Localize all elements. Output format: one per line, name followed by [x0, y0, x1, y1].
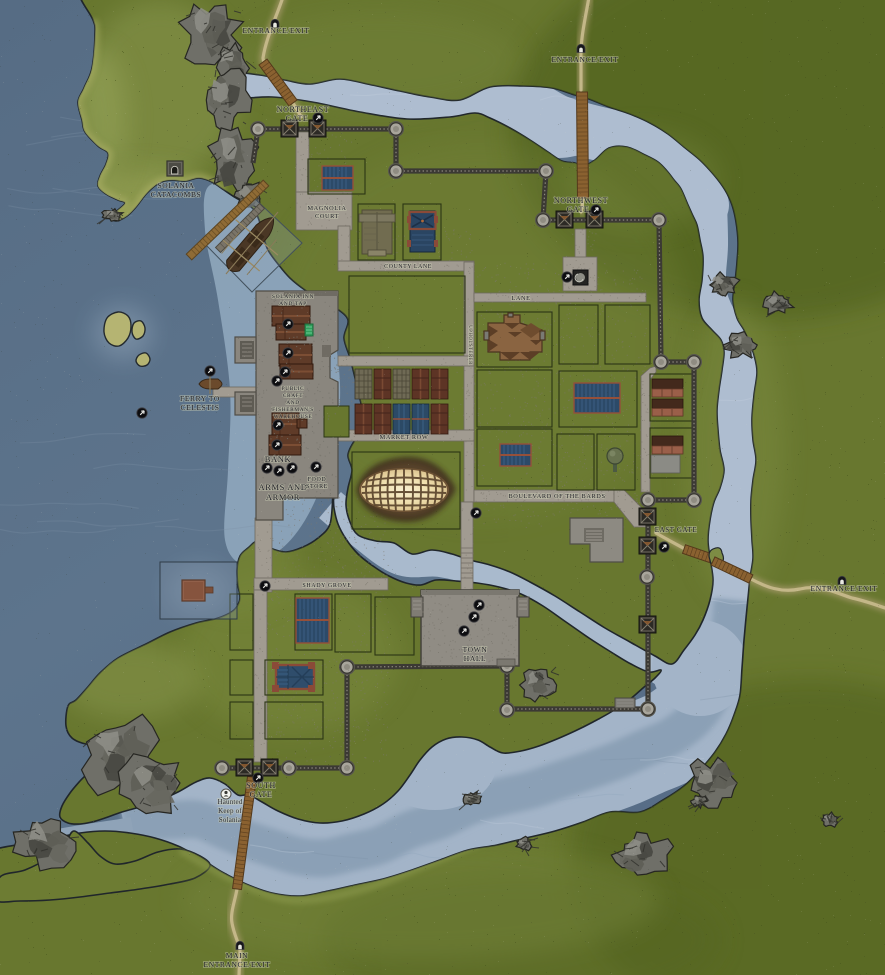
- svg-text:BANK: BANK: [265, 454, 292, 464]
- svg-text:NORTHEAST: NORTHEAST: [277, 105, 329, 114]
- svg-text:GATE: GATE: [250, 790, 273, 799]
- svg-text:NORTHWEST: NORTHWEST: [554, 196, 608, 205]
- svg-text:Solania: Solania: [219, 816, 242, 824]
- svg-text:WAREHOUSE: WAREHOUSE: [274, 414, 313, 420]
- svg-text:SOUTH: SOUTH: [246, 781, 276, 790]
- svg-text:ARMOR: ARMOR: [266, 492, 300, 502]
- svg-text:AND TAP: AND TAP: [279, 301, 307, 307]
- svg-text:Haunted: Haunted: [217, 798, 242, 806]
- svg-text:SHADY GROVE: SHADY GROVE: [302, 583, 351, 589]
- svg-text:ARMS AND: ARMS AND: [259, 482, 308, 492]
- svg-text:FISHERMAN'S: FISHERMAN'S: [272, 407, 314, 413]
- svg-text:SOLANIA: SOLANIA: [157, 181, 194, 190]
- svg-text:ENTRANCE/EXIT: ENTRANCE/EXIT: [243, 26, 310, 35]
- svg-text:Keep of: Keep of: [218, 807, 242, 815]
- svg-text:GATE: GATE: [286, 114, 309, 123]
- svg-text:SOLANIA INN: SOLANIA INN: [272, 294, 314, 300]
- svg-text:ENTRANCE/EXIT: ENTRANCE/EXIT: [204, 960, 271, 969]
- svg-text:AND: AND: [286, 400, 299, 406]
- svg-text:CELESTIS: CELESTIS: [181, 403, 220, 412]
- svg-text:CATACOMBS: CATACOMBS: [151, 190, 202, 199]
- svg-text:FERRY TO: FERRY TO: [180, 394, 220, 403]
- svg-text:EAST GATE: EAST GATE: [655, 526, 697, 534]
- svg-text:GATE: GATE: [567, 205, 590, 214]
- svg-text:HALL: HALL: [464, 654, 486, 663]
- svg-text:TOWN: TOWN: [463, 645, 488, 654]
- svg-text:ENTRANCE/EXIT: ENTRANCE/EXIT: [811, 584, 878, 593]
- svg-text:MAGNOLIA: MAGNOLIA: [307, 205, 346, 212]
- svg-text:BOULEVARD OF THE BARDS: BOULEVARD OF THE BARDS: [508, 493, 605, 500]
- svg-text:LANE: LANE: [511, 295, 530, 302]
- svg-text:CRAFT: CRAFT: [283, 393, 303, 399]
- svg-text:PUBLIC: PUBLIC: [282, 386, 305, 392]
- svg-text:COURT: COURT: [315, 213, 339, 220]
- svg-text:MARKET ROW: MARKET ROW: [380, 434, 429, 441]
- svg-text:FOOD: FOOD: [308, 477, 327, 483]
- svg-text:COUNTY LANE: COUNTY LANE: [384, 264, 432, 270]
